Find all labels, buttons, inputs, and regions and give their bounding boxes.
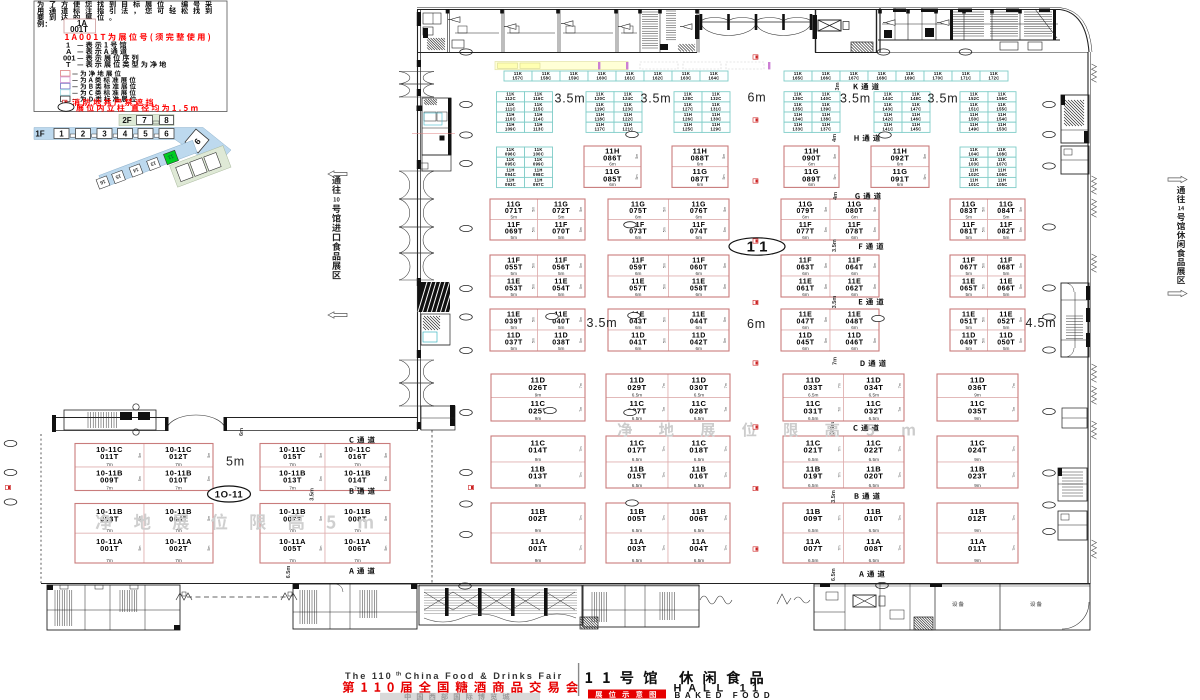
svg-text:5m: 5m (663, 284, 667, 289)
svg-text:157C: 157C (513, 75, 524, 80)
svg-text:001T: 001T (100, 544, 119, 553)
svg-text:137C: 137C (821, 127, 832, 132)
svg-text:5m: 5m (873, 284, 877, 289)
svg-text:013T: 013T (528, 472, 547, 481)
svg-text:5m: 5m (1019, 227, 1023, 232)
svg-text:147C: 147C (911, 106, 922, 111)
svg-text:6.5m: 6.5m (694, 483, 705, 488)
svg-text:6m: 6m (609, 182, 616, 187)
svg-text:5m: 5m (873, 338, 877, 343)
svg-text:3.5m: 3.5m (831, 490, 837, 503)
svg-text:5m: 5m (207, 516, 211, 521)
svg-text:1F: 1F (35, 130, 44, 139)
svg-text:3.5m: 3.5m (832, 296, 838, 309)
svg-text:5m: 5m (824, 284, 828, 289)
svg-text:6m: 6m (635, 325, 642, 330)
svg-text:5m: 5m (1019, 284, 1023, 289)
svg-text:6m: 6m (802, 214, 809, 219)
svg-text:153C: 153C (997, 127, 1008, 132)
svg-text:127C: 127C (683, 106, 694, 111)
svg-text:6.5m: 6.5m (694, 457, 705, 462)
svg-text:5m: 5m (833, 154, 837, 159)
svg-text:5m: 5m (723, 207, 727, 212)
svg-text:5m: 5m (532, 263, 536, 268)
svg-text:103C: 103C (969, 162, 980, 167)
svg-text:6.5m: 6.5m (869, 483, 880, 488)
svg-text:5m: 5m (1019, 317, 1023, 322)
svg-text:033T: 033T (804, 383, 823, 392)
svg-text:9m: 9m (535, 528, 542, 533)
svg-text:5m: 5m (1019, 263, 1023, 268)
svg-text:7m: 7m (289, 485, 296, 490)
svg-text:5m: 5m (511, 235, 518, 240)
svg-text:138C: 138C (821, 117, 832, 122)
svg-text:155C: 155C (997, 106, 1008, 111)
svg-text:7m: 7m (838, 383, 842, 388)
svg-text:5m: 5m (873, 207, 877, 212)
svg-text:144C: 144C (883, 96, 894, 101)
svg-text:131C: 131C (711, 106, 722, 111)
svg-text:164C: 164C (709, 75, 720, 80)
svg-text:6.5m: 6.5m (869, 457, 880, 462)
svg-text:7m: 7m (579, 516, 583, 521)
svg-text:5m: 5m (558, 292, 565, 297)
svg-text:6.5m: 6.5m (831, 568, 837, 581)
svg-text:121C: 121C (623, 127, 634, 132)
svg-text:126C: 126C (683, 117, 694, 122)
svg-text:5m: 5m (579, 227, 583, 232)
svg-text:7m: 7m (724, 447, 728, 452)
svg-text:003T: 003T (627, 544, 646, 553)
svg-text:093C: 093C (505, 182, 516, 187)
svg-text:5m: 5m (635, 154, 639, 159)
svg-text:5m: 5m (1003, 325, 1010, 330)
svg-text:7m: 7m (579, 473, 583, 478)
svg-text:7m: 7m (838, 407, 842, 412)
svg-text:6m: 6m (802, 235, 809, 240)
svg-text:3m: 3m (835, 82, 841, 90)
svg-text:6.5m: 6.5m (869, 528, 880, 533)
svg-text:5m: 5m (982, 227, 986, 232)
svg-text:5m: 5m (579, 263, 583, 268)
svg-text:6m: 6m (635, 346, 642, 351)
svg-text:5m: 5m (966, 325, 973, 330)
svg-text:008T: 008T (864, 544, 883, 553)
svg-text:6.5m: 6.5m (869, 416, 880, 421)
svg-text:5m: 5m (663, 338, 667, 343)
svg-text:5m: 5m (319, 476, 323, 481)
svg-text:113C: 113C (533, 127, 544, 132)
svg-text:120C: 120C (595, 96, 606, 101)
svg-text:6m: 6m (851, 346, 858, 351)
svg-text:5m: 5m (722, 175, 726, 180)
svg-text:5m: 5m (384, 476, 388, 481)
svg-text:5m: 5m (532, 284, 536, 289)
svg-text:124C: 124C (623, 96, 634, 101)
svg-text:115C: 115C (533, 106, 544, 111)
svg-text:015T: 015T (627, 472, 646, 481)
svg-text:163C: 163C (681, 75, 692, 80)
svg-text:5m: 5m (723, 263, 727, 268)
svg-text:5m: 5m (384, 546, 388, 551)
svg-text:7m: 7m (662, 383, 666, 388)
svg-text:110C: 110C (505, 117, 516, 122)
svg-text:009T: 009T (100, 476, 119, 485)
svg-text:The 110: The 110 (345, 671, 393, 681)
svg-text:035T: 035T (968, 406, 987, 415)
svg-text:7m: 7m (833, 357, 839, 365)
svg-text:5m: 5m (558, 235, 565, 240)
svg-text:9m: 9m (974, 528, 981, 533)
svg-text:5m: 5m (138, 546, 142, 551)
svg-text:021T: 021T (804, 446, 823, 455)
svg-text:009T: 009T (804, 514, 823, 523)
svg-text:7m: 7m (354, 462, 361, 467)
svg-text:023T: 023T (968, 472, 987, 481)
svg-text:7m: 7m (106, 462, 113, 467)
svg-text:6m: 6m (696, 346, 703, 351)
svg-text:6.5m: 6.5m (694, 416, 705, 421)
svg-text:097C: 097C (533, 182, 544, 187)
svg-text:102C: 102C (969, 172, 980, 177)
svg-text:5m: 5m (511, 292, 518, 297)
svg-text:6m: 6m (635, 235, 642, 240)
svg-text:013T: 013T (283, 476, 302, 485)
svg-text:031T: 031T (804, 406, 823, 415)
svg-text:5m: 5m (558, 325, 565, 330)
svg-text:011T: 011T (100, 452, 118, 461)
svg-text:6.5m: 6.5m (808, 416, 819, 421)
svg-text:5m: 5m (579, 338, 583, 343)
svg-text:166C: 166C (821, 75, 832, 80)
svg-text:094C: 094C (505, 172, 516, 177)
svg-text:5m: 5m (966, 214, 973, 219)
svg-text:151C: 151C (969, 106, 980, 111)
svg-text:5m: 5m (319, 453, 323, 458)
svg-text:5m: 5m (982, 284, 986, 289)
svg-text:171C: 171C (961, 75, 972, 80)
svg-text:122C: 122C (623, 117, 634, 122)
svg-text:165C: 165C (793, 75, 804, 80)
svg-text:5m: 5m (824, 338, 828, 343)
svg-text:6m: 6m (851, 292, 858, 297)
svg-text:101C: 101C (969, 182, 980, 187)
svg-text:9m: 9m (974, 416, 981, 421)
svg-text:002T: 002T (169, 544, 188, 553)
svg-text:9m: 9m (974, 392, 981, 397)
svg-text:020T: 020T (864, 472, 883, 481)
svg-text:6m: 6m (239, 428, 245, 436)
svg-text:006T: 006T (689, 514, 708, 523)
svg-text:6.5m: 6.5m (694, 528, 705, 533)
svg-text:5m: 5m (532, 227, 536, 232)
svg-text:5m: 5m (723, 317, 727, 322)
svg-text:5m: 5m (722, 154, 726, 159)
svg-text:5m: 5m (824, 207, 828, 212)
svg-text:112C: 112C (505, 96, 516, 101)
svg-text:7m: 7m (662, 447, 666, 452)
svg-text:9m: 9m (535, 558, 542, 563)
svg-text:5m: 5m (207, 453, 211, 458)
svg-text:6.5m: 6.5m (632, 416, 643, 421)
svg-text:029T: 029T (627, 383, 646, 392)
svg-text:145C: 145C (911, 127, 922, 132)
svg-text:4m: 4m (832, 134, 838, 142)
svg-text:140C: 140C (821, 96, 832, 101)
svg-text:168C: 168C (877, 75, 888, 80)
svg-text:8: 8 (164, 116, 169, 125)
svg-text:2F: 2F (122, 116, 131, 125)
svg-text:5m: 5m (966, 346, 973, 351)
svg-text:5m: 5m (663, 227, 667, 232)
svg-text:6: 6 (164, 130, 169, 139)
svg-text:7m: 7m (662, 546, 666, 551)
svg-text:011T: 011T (968, 544, 987, 553)
svg-text:5m: 5m (824, 317, 828, 322)
svg-text:T: T (66, 60, 71, 69)
svg-text:030T: 030T (689, 383, 708, 392)
svg-text:5m: 5m (982, 263, 986, 268)
svg-text:7: 7 (142, 116, 147, 125)
svg-text:6m: 6m (897, 162, 904, 167)
svg-text:105C: 105C (997, 182, 1008, 187)
svg-text:7m: 7m (289, 462, 296, 467)
svg-text:5m: 5m (511, 271, 518, 276)
svg-text:5m: 5m (982, 338, 986, 343)
svg-text:5m: 5m (207, 546, 211, 551)
svg-text:5m: 5m (532, 338, 536, 343)
svg-text:5m: 5m (723, 227, 727, 232)
svg-text:3.5m: 3.5m (928, 92, 959, 106)
svg-text:6m: 6m (697, 182, 704, 187)
svg-text:7m: 7m (838, 447, 842, 452)
svg-text:5m: 5m (1003, 235, 1010, 240)
svg-text:099C: 099C (533, 162, 544, 167)
svg-text:5m: 5m (558, 346, 565, 351)
svg-text:6m: 6m (696, 292, 703, 297)
svg-text:3.5m: 3.5m (587, 316, 618, 330)
svg-text:111C: 111C (505, 106, 516, 111)
svg-text:9m: 9m (535, 457, 542, 462)
svg-text:130C: 130C (711, 117, 722, 122)
svg-text:7m: 7m (1012, 473, 1016, 478)
svg-text:6m: 6m (897, 182, 904, 187)
svg-text:107C: 107C (997, 162, 1008, 167)
svg-text:6m: 6m (696, 271, 703, 276)
svg-text:5m: 5m (319, 546, 323, 551)
svg-text:5m: 5m (635, 175, 639, 180)
svg-text:7m: 7m (838, 516, 842, 521)
svg-text:6.5m: 6.5m (869, 558, 880, 563)
svg-text:142C: 142C (883, 117, 894, 122)
svg-text:7m: 7m (1012, 447, 1016, 452)
svg-text:7m: 7m (106, 558, 113, 563)
svg-text:7m: 7m (175, 558, 182, 563)
svg-text:6.5m: 6.5m (632, 558, 643, 563)
svg-text:172C: 172C (989, 75, 1000, 80)
svg-text:6m: 6m (609, 162, 616, 167)
svg-text:096C: 096C (505, 152, 516, 157)
svg-text:5m: 5m (532, 207, 536, 212)
svg-text:5m: 5m (982, 207, 986, 212)
svg-text:012T: 012T (169, 452, 188, 461)
svg-text:7m: 7m (838, 473, 842, 478)
svg-text:152C: 152C (969, 96, 980, 101)
svg-text:7m: 7m (724, 383, 728, 388)
svg-text:5m: 5m (966, 271, 973, 276)
svg-text:5m: 5m (1003, 214, 1010, 219)
svg-text:143C: 143C (883, 106, 894, 111)
svg-text:6m: 6m (808, 162, 815, 167)
svg-text:3.5m: 3.5m (641, 92, 672, 106)
svg-text:5m: 5m (138, 476, 142, 481)
svg-text:170C: 170C (933, 75, 944, 80)
svg-text:129C: 129C (711, 127, 722, 132)
svg-text:022T: 022T (864, 446, 883, 455)
svg-text:028T: 028T (689, 406, 708, 415)
svg-text:7m: 7m (579, 447, 583, 452)
svg-text:7m: 7m (838, 546, 842, 551)
svg-text:6.5m: 6.5m (632, 528, 643, 533)
svg-text:7m: 7m (724, 546, 728, 551)
svg-text:4: 4 (123, 130, 128, 139)
svg-text:5m: 5m (558, 271, 565, 276)
svg-text:5: 5 (143, 130, 148, 139)
svg-text:5m: 5m (824, 263, 828, 268)
svg-text:9m: 9m (535, 416, 542, 421)
svg-text:125C: 125C (683, 127, 694, 132)
svg-text:3.5m: 3.5m (555, 92, 586, 106)
svg-text:148C: 148C (911, 96, 922, 101)
svg-text:146C: 146C (911, 117, 922, 122)
svg-text:108C: 108C (997, 152, 1008, 157)
svg-text:6.5m: 6.5m (808, 457, 819, 462)
svg-text:3: 3 (102, 130, 107, 139)
svg-text:9m: 9m (974, 457, 981, 462)
svg-text:5m: 5m (824, 227, 828, 232)
svg-text:5m: 5m (319, 516, 323, 521)
svg-text:106C: 106C (997, 172, 1008, 177)
svg-text:010T: 010T (169, 476, 188, 485)
svg-text:5m: 5m (1003, 271, 1010, 276)
svg-text:5m: 5m (511, 346, 518, 351)
svg-text:100C: 100C (533, 152, 544, 157)
svg-text:6m: 6m (802, 271, 809, 276)
svg-text:005T: 005T (283, 544, 302, 553)
svg-text:016T: 016T (348, 452, 367, 461)
svg-text:9m: 9m (535, 483, 542, 488)
svg-text:6.5m: 6.5m (694, 392, 705, 397)
svg-text:159C: 159C (569, 75, 580, 80)
svg-text:026T: 026T (528, 383, 547, 392)
svg-text:036T: 036T (968, 383, 987, 392)
svg-text:161C: 161C (625, 75, 636, 80)
svg-text:133C: 133C (793, 127, 804, 132)
svg-text:4m: 4m (833, 192, 839, 200)
svg-text:5m: 5m (579, 284, 583, 289)
svg-text:034T: 034T (864, 383, 883, 392)
svg-text:6.5m: 6.5m (808, 558, 819, 563)
svg-text:014T: 014T (348, 476, 367, 485)
svg-text:7m: 7m (289, 558, 296, 563)
svg-text:5m: 5m (532, 317, 536, 322)
svg-text:1O-11: 1O-11 (215, 490, 244, 501)
svg-text:7m: 7m (898, 473, 902, 478)
svg-text:010T: 010T (864, 514, 883, 523)
svg-text:114C: 114C (533, 117, 544, 122)
svg-text:9m: 9m (535, 392, 542, 397)
svg-text:119C: 119C (595, 106, 606, 111)
svg-text:6m: 6m (851, 325, 858, 330)
svg-text:150C: 150C (969, 117, 980, 122)
svg-text:5m: 5m (1003, 346, 1010, 351)
svg-text:7m: 7m (898, 516, 902, 521)
svg-text:136C: 136C (793, 96, 804, 101)
svg-text:141C: 141C (883, 127, 894, 132)
svg-text:6m: 6m (747, 317, 766, 331)
svg-text:7m: 7m (354, 528, 361, 533)
svg-text:6m: 6m (748, 91, 767, 105)
svg-text:7m: 7m (354, 558, 361, 563)
svg-text:005T: 005T (627, 514, 646, 523)
svg-text:7m: 7m (175, 462, 182, 467)
svg-text:7m: 7m (1012, 546, 1016, 551)
svg-text:5m: 5m (663, 317, 667, 322)
svg-text:9m: 9m (974, 483, 981, 488)
svg-text:7m: 7m (724, 516, 728, 521)
svg-text:6.5m: 6.5m (632, 392, 643, 397)
svg-text:123C: 123C (623, 106, 634, 111)
svg-text:6.5m: 6.5m (808, 483, 819, 488)
svg-text:6m: 6m (802, 292, 809, 297)
svg-text:7m: 7m (898, 447, 902, 452)
svg-text:5m: 5m (833, 175, 837, 180)
svg-text:7m: 7m (579, 407, 583, 412)
svg-text:117C: 117C (595, 127, 606, 132)
svg-text:016T: 016T (689, 472, 708, 481)
svg-text:6.5m: 6.5m (286, 566, 292, 579)
svg-text:134C: 134C (793, 117, 804, 122)
svg-text:6.5m: 6.5m (808, 392, 819, 397)
svg-text:118C: 118C (595, 117, 606, 122)
svg-text:004T: 004T (689, 544, 708, 553)
svg-text:002T: 002T (528, 514, 547, 523)
svg-text:7m: 7m (106, 485, 113, 490)
svg-text:5m: 5m (558, 214, 565, 219)
svg-text:5m: 5m (663, 207, 667, 212)
svg-text:160C: 160C (597, 75, 608, 80)
svg-text:149C: 149C (969, 127, 980, 132)
svg-text:001T: 001T (70, 25, 88, 34)
svg-text:7m: 7m (579, 546, 583, 551)
svg-text:6m: 6m (802, 346, 809, 351)
svg-text:5m: 5m (1019, 207, 1023, 212)
svg-text:167C: 167C (849, 75, 860, 80)
svg-text:5m: 5m (579, 207, 583, 212)
svg-text:5m: 5m (207, 476, 211, 481)
svg-text:7m: 7m (662, 473, 666, 478)
svg-text:3.5m: 3.5m (310, 488, 316, 501)
svg-text:7m: 7m (724, 473, 728, 478)
svg-text:5m: 5m (226, 455, 245, 469)
svg-text:6m: 6m (696, 214, 703, 219)
svg-text:006T: 006T (348, 544, 367, 553)
svg-text:7m: 7m (106, 528, 113, 533)
svg-text:9m: 9m (974, 558, 981, 563)
svg-text:3.5m: 3.5m (832, 239, 838, 252)
svg-text:014T: 014T (528, 446, 547, 455)
svg-text:012T: 012T (968, 514, 987, 523)
